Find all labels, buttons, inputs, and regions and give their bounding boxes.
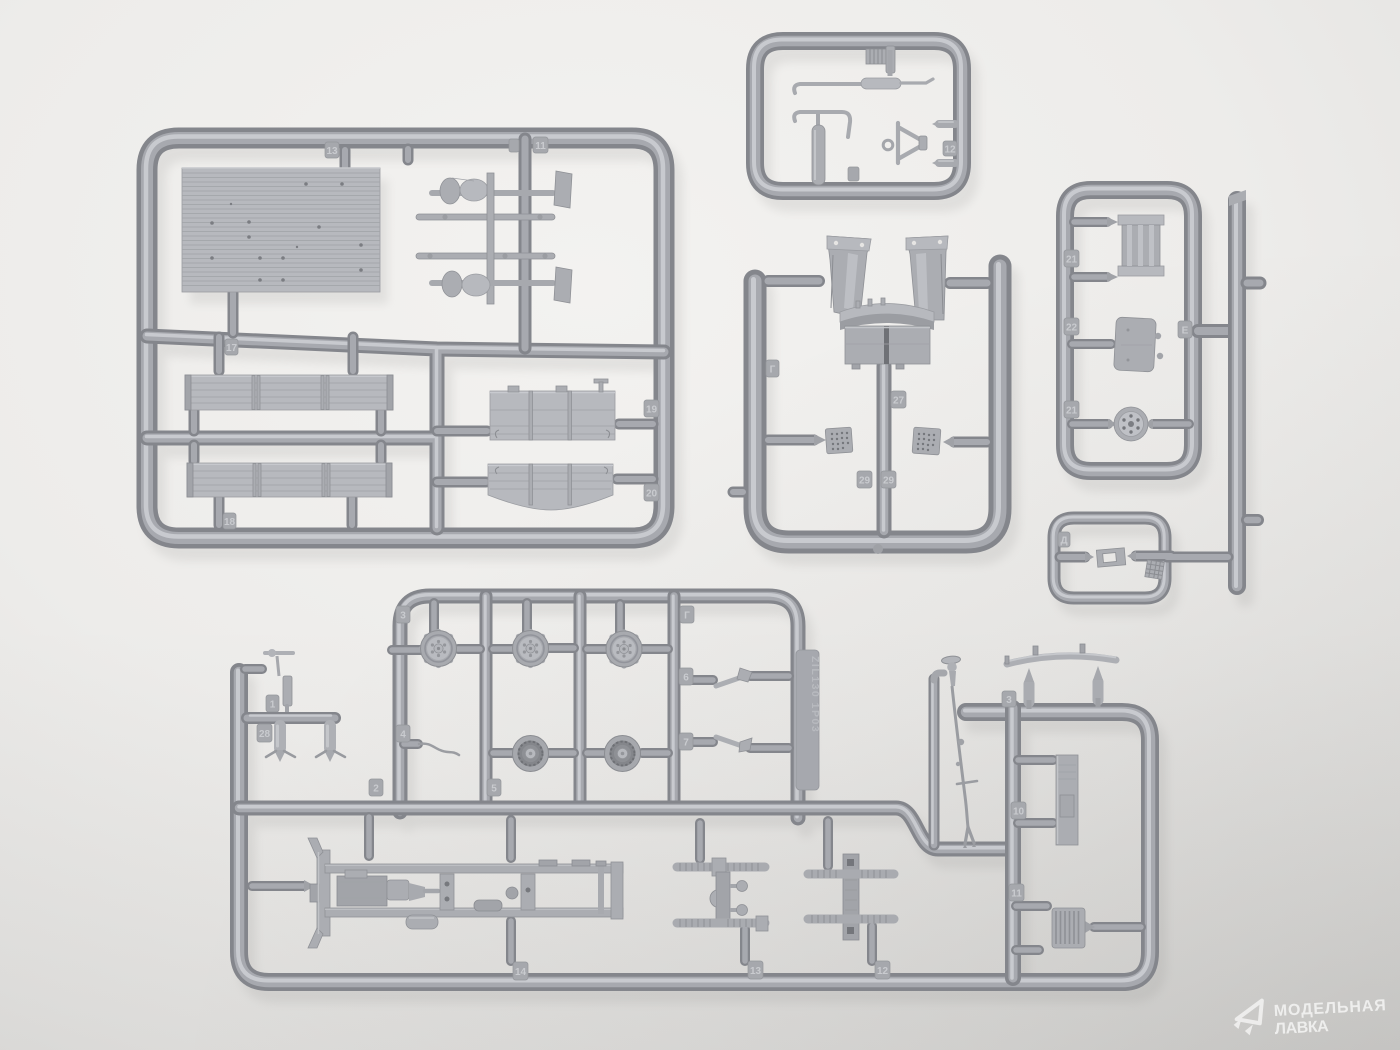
svg-text:13: 13 xyxy=(326,146,338,157)
svg-text:13: 13 xyxy=(750,966,762,977)
svg-text:29: 29 xyxy=(859,476,871,487)
svg-text:Е: Е xyxy=(1182,326,1189,337)
svg-text:ЛАВКА: ЛАВКА xyxy=(1274,1018,1329,1038)
svg-text:5: 5 xyxy=(491,784,497,795)
svg-text:Г: Г xyxy=(770,365,776,376)
svg-text:18: 18 xyxy=(224,517,236,528)
svg-text:10: 10 xyxy=(1013,807,1025,818)
svg-text:Г: Г xyxy=(684,611,690,622)
svg-text:2: 2 xyxy=(373,784,379,795)
svg-text:29: 29 xyxy=(883,476,895,487)
svg-text:3: 3 xyxy=(400,611,406,622)
svg-text:17: 17 xyxy=(226,343,238,354)
svg-text:6: 6 xyxy=(683,673,689,684)
svg-text:27: 27 xyxy=(893,396,905,407)
svg-text:ZIL130 1P03: ZIL130 1P03 xyxy=(809,656,821,733)
svg-text:22: 22 xyxy=(1066,323,1078,334)
svg-text:11: 11 xyxy=(535,141,546,152)
svg-text:14: 14 xyxy=(515,967,527,978)
svg-text:19: 19 xyxy=(646,405,658,416)
svg-text:7: 7 xyxy=(683,738,689,749)
svg-text:1: 1 xyxy=(270,700,276,711)
svg-text:3: 3 xyxy=(1006,695,1012,706)
svg-text:11: 11 xyxy=(1011,889,1022,900)
svg-text:21: 21 xyxy=(1066,255,1078,266)
svg-text:Д: Д xyxy=(1060,536,1067,547)
svg-text:21: 21 xyxy=(1066,406,1078,417)
svg-text:12: 12 xyxy=(944,145,956,156)
svg-text:20: 20 xyxy=(646,489,658,500)
svg-text:12: 12 xyxy=(877,966,889,977)
svg-text:4: 4 xyxy=(400,730,406,741)
svg-text:28: 28 xyxy=(259,729,271,740)
